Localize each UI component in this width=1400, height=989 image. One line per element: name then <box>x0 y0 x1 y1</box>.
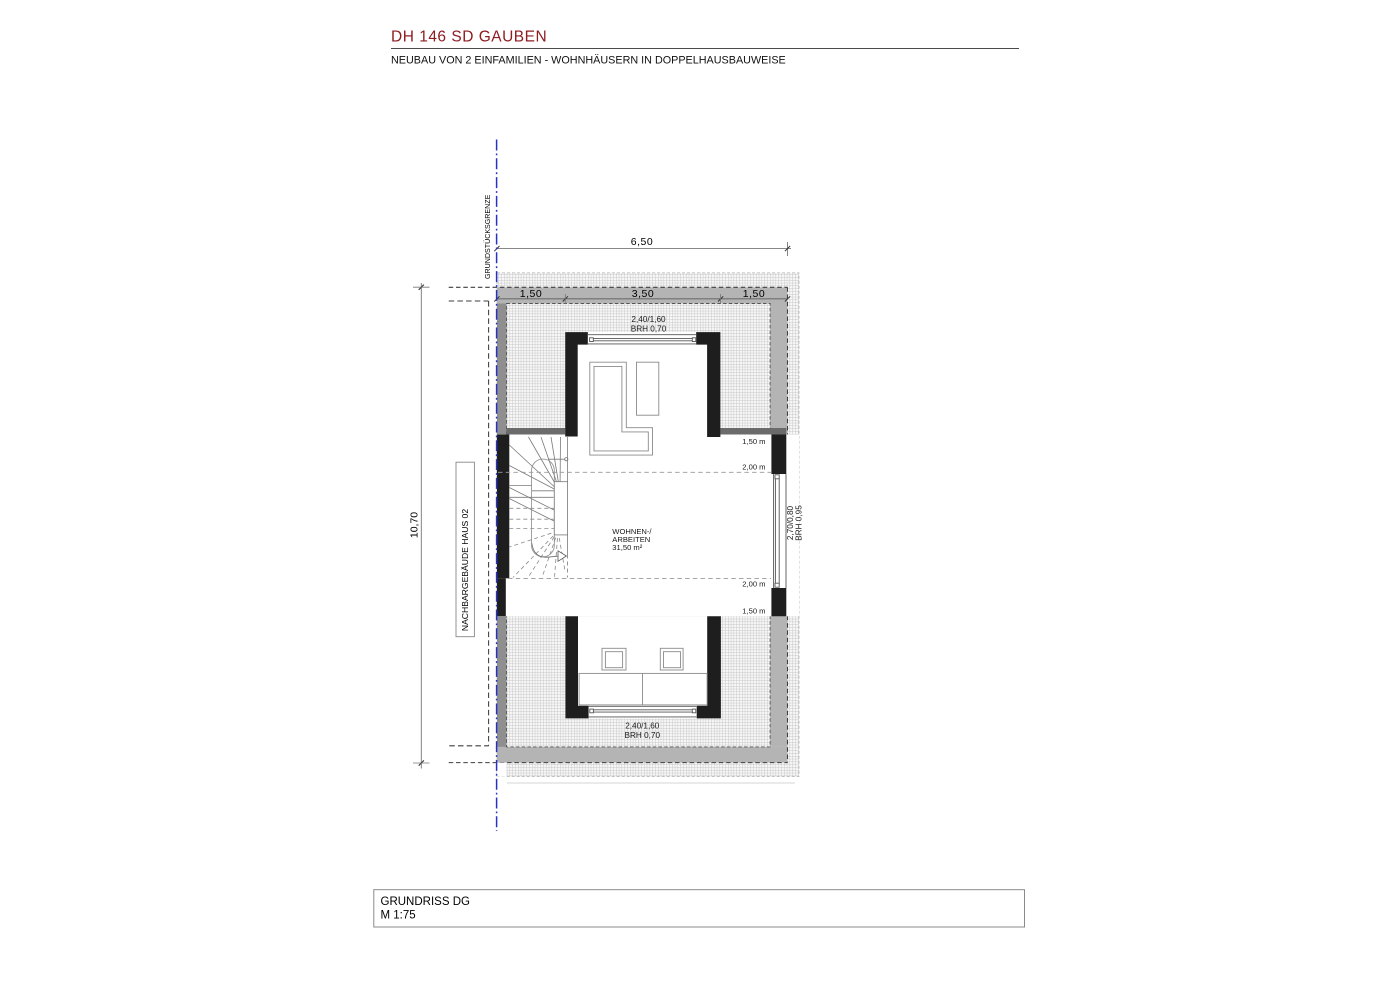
svg-text:31,50 m²: 31,50 m² <box>612 543 642 552</box>
svg-text:2,40/1,60: 2,40/1,60 <box>631 315 666 324</box>
svg-text:GRUNDSTÜCKSGRENZE: GRUNDSTÜCKSGRENZE <box>484 194 492 279</box>
svg-text:NACHBARGEBÄUDE HAUS 02: NACHBARGEBÄUDE HAUS 02 <box>460 509 470 631</box>
svg-text:GRUNDRISS DG: GRUNDRISS DG <box>381 896 471 908</box>
svg-text:1,50 m: 1,50 m <box>742 437 765 446</box>
svg-text:6,50: 6,50 <box>631 236 653 248</box>
svg-text:1,50 m: 1,50 m <box>742 607 765 616</box>
svg-text:3,50: 3,50 <box>632 288 654 300</box>
svg-text:DH 146 SD GAUBEN: DH 146 SD GAUBEN <box>391 29 547 46</box>
svg-text:2,00 m: 2,00 m <box>742 580 765 589</box>
svg-text:NEUBAU VON 2 EINFAMILIEN - WOH: NEUBAU VON 2 EINFAMILIEN - WOHNHÄUSERN I… <box>391 55 786 67</box>
svg-text:M 1:75: M 1:75 <box>381 910 416 922</box>
svg-text:1,50: 1,50 <box>520 288 542 300</box>
svg-text:BRH 0,95: BRH 0,95 <box>795 505 804 541</box>
svg-text:2,40/1,60: 2,40/1,60 <box>625 722 660 731</box>
svg-text:2,00 m: 2,00 m <box>742 463 765 472</box>
svg-text:BRH 0,70: BRH 0,70 <box>625 731 661 740</box>
svg-text:10,70: 10,70 <box>409 512 421 538</box>
svg-text:BRH 0,70: BRH 0,70 <box>631 325 667 334</box>
svg-text:1,50: 1,50 <box>743 288 765 300</box>
